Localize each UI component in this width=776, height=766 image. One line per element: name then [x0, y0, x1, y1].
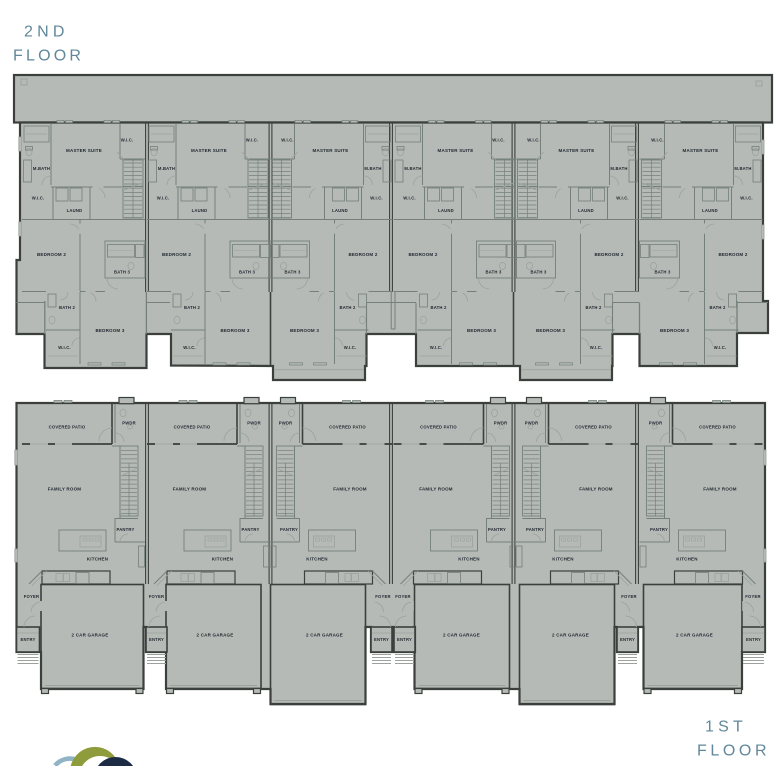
svg-text:FOYER: FOYER: [745, 594, 760, 599]
svg-text:LAUND: LAUND: [578, 208, 594, 213]
svg-text:W.I.C.: W.I.C.: [740, 196, 753, 201]
svg-text:ENTRY: ENTRY: [746, 637, 761, 642]
svg-text:COVERED PATIO: COVERED PATIO: [49, 425, 86, 430]
svg-text:FAMILY ROOM: FAMILY ROOM: [703, 487, 737, 492]
svg-text:W.I.C.: W.I.C.: [183, 345, 196, 350]
svg-text:W.I.C.: W.I.C.: [281, 138, 294, 143]
svg-text:PANTRY: PANTRY: [280, 527, 298, 532]
svg-text:MASTER SUITE: MASTER SUITE: [559, 148, 595, 153]
svg-text:KITCHEN: KITCHEN: [458, 557, 479, 562]
svg-text:BEDROOM 3: BEDROOM 3: [536, 328, 565, 333]
svg-text:ENTRY: ENTRY: [20, 637, 35, 642]
svg-text:BATH 3: BATH 3: [114, 270, 130, 275]
svg-text:FOYER: FOYER: [375, 594, 390, 599]
svg-text:ENTRY: ENTRY: [397, 637, 412, 642]
svg-text:BEDROOM 2: BEDROOM 2: [162, 252, 191, 257]
svg-text:FAMILY ROOM: FAMILY ROOM: [579, 487, 613, 492]
svg-text:FAMILY ROOM: FAMILY ROOM: [48, 487, 82, 492]
svg-text:M.BATH: M.BATH: [33, 166, 50, 171]
svg-text:BATH 3: BATH 3: [485, 270, 501, 275]
svg-text:BATH 2: BATH 2: [709, 305, 725, 310]
svg-text:FLOOR: FLOOR: [697, 743, 770, 760]
svg-text:PWDR: PWDR: [247, 421, 261, 426]
svg-text:FOYER: FOYER: [395, 594, 410, 599]
svg-text:2 CAR GARAGE: 2 CAR GARAGE: [443, 633, 480, 638]
svg-text:BATH 2: BATH 2: [184, 305, 200, 310]
svg-text:KITCHEN: KITCHEN: [552, 557, 573, 562]
svg-text:PWDR: PWDR: [122, 421, 136, 426]
svg-text:ENTRY: ENTRY: [149, 637, 164, 642]
svg-text:W.I.C.: W.I.C.: [590, 345, 603, 350]
svg-text:BEDROOM 2: BEDROOM 2: [408, 252, 437, 257]
svg-text:LAUND: LAUND: [702, 208, 718, 213]
svg-text:BEDROOM 3: BEDROOM 3: [220, 328, 249, 333]
svg-text:2 CAR GARAGE: 2 CAR GARAGE: [306, 633, 343, 638]
svg-text:W.I.C.: W.I.C.: [370, 196, 383, 201]
svg-text:M.BATH: M.BATH: [158, 166, 175, 171]
svg-text:PWDR: PWDR: [494, 421, 508, 426]
svg-text:LAUND: LAUND: [192, 208, 208, 213]
svg-text:1ST: 1ST: [705, 719, 747, 736]
svg-text:COVERED PATIO: COVERED PATIO: [699, 425, 736, 430]
svg-text:BATH 2: BATH 2: [339, 305, 355, 310]
svg-text:FAMILY ROOM: FAMILY ROOM: [173, 487, 207, 492]
svg-text:BEDROOM 3: BEDROOM 3: [467, 328, 496, 333]
svg-text:W.I.C.: W.I.C.: [121, 138, 134, 143]
svg-text:BATH 3: BATH 3: [284, 270, 300, 275]
svg-text:W.I.C.: W.I.C.: [616, 196, 629, 201]
svg-text:2 CAR GARAGE: 2 CAR GARAGE: [197, 633, 234, 638]
svg-text:KITCHEN: KITCHEN: [676, 557, 697, 562]
svg-text:M.BATH: M.BATH: [610, 166, 627, 171]
svg-text:MASTER SUITE: MASTER SUITE: [191, 148, 227, 153]
svg-text:PWDR: PWDR: [525, 421, 539, 426]
svg-text:W.I.C.: W.I.C.: [492, 138, 505, 143]
svg-text:FLOOR: FLOOR: [13, 48, 84, 65]
svg-text:PANTRY: PANTRY: [650, 527, 668, 532]
svg-text:2 CAR GARAGE: 2 CAR GARAGE: [72, 633, 109, 638]
svg-text:W.I.C.: W.I.C.: [157, 196, 170, 201]
svg-text:FAMILY ROOM: FAMILY ROOM: [333, 487, 367, 492]
svg-text:ENTRY: ENTRY: [620, 637, 635, 642]
svg-text:KITCHEN: KITCHEN: [212, 557, 233, 562]
svg-text:BATH 2: BATH 2: [59, 305, 75, 310]
svg-text:MASTER SUITE: MASTER SUITE: [313, 148, 349, 153]
svg-text:KITCHEN: KITCHEN: [306, 557, 327, 562]
svg-text:FOYER: FOYER: [621, 594, 636, 599]
svg-text:PWDR: PWDR: [279, 421, 293, 426]
svg-text:LAUND: LAUND: [438, 208, 454, 213]
svg-text:PANTRY: PANTRY: [488, 527, 506, 532]
svg-text:W.I.C.: W.I.C.: [714, 345, 727, 350]
svg-text:BATH 2: BATH 2: [585, 305, 601, 310]
svg-text:COVERED PATIO: COVERED PATIO: [329, 425, 366, 430]
svg-text:M.BATH: M.BATH: [364, 166, 381, 171]
svg-text:2 CAR GARAGE: 2 CAR GARAGE: [552, 633, 589, 638]
svg-text:BATH 3: BATH 3: [530, 270, 546, 275]
svg-text:W.I.C.: W.I.C.: [344, 345, 357, 350]
svg-text:W.I.C.: W.I.C.: [430, 345, 443, 350]
svg-text:COVERED PATIO: COVERED PATIO: [575, 425, 612, 430]
svg-text:W.I.C.: W.I.C.: [403, 196, 416, 201]
svg-text:MASTER SUITE: MASTER SUITE: [683, 148, 719, 153]
svg-text:BEDROOM 3: BEDROOM 3: [290, 328, 319, 333]
svg-text:BATH 3: BATH 3: [654, 270, 670, 275]
svg-text:W.I.C.: W.I.C.: [527, 138, 540, 143]
svg-text:BEDROOM 3: BEDROOM 3: [660, 328, 689, 333]
svg-text:BEDROOM 2: BEDROOM 2: [348, 252, 377, 257]
svg-text:W.I.C.: W.I.C.: [246, 138, 259, 143]
svg-text:W.I.C.: W.I.C.: [32, 196, 45, 201]
svg-text:M.BATH: M.BATH: [734, 166, 751, 171]
svg-text:PWDR: PWDR: [649, 421, 663, 426]
svg-text:COVERED PATIO: COVERED PATIO: [420, 425, 457, 430]
svg-text:LAUND: LAUND: [332, 208, 348, 213]
svg-text:MASTER SUITE: MASTER SUITE: [66, 148, 102, 153]
svg-text:MASTER SUITE: MASTER SUITE: [438, 148, 474, 153]
svg-text:FAMILY ROOM: FAMILY ROOM: [419, 487, 453, 492]
svg-text:LAUND: LAUND: [67, 208, 83, 213]
svg-text:PANTRY: PANTRY: [526, 527, 544, 532]
svg-text:COVERED PATIO: COVERED PATIO: [174, 425, 211, 430]
svg-text:KITCHEN: KITCHEN: [87, 557, 108, 562]
svg-text:W.I.C.: W.I.C.: [58, 345, 71, 350]
svg-text:BEDROOM 2: BEDROOM 2: [594, 252, 623, 257]
svg-text:BEDROOM 2: BEDROOM 2: [37, 252, 66, 257]
svg-text:PANTRY: PANTRY: [117, 527, 135, 532]
svg-text:FOYER: FOYER: [149, 594, 164, 599]
svg-text:ENTRY: ENTRY: [374, 637, 389, 642]
svg-text:PANTRY: PANTRY: [242, 527, 260, 532]
svg-text:2 CAR GARAGE: 2 CAR GARAGE: [676, 633, 713, 638]
svg-text:M.BATH: M.BATH: [404, 166, 421, 171]
svg-text:2ND: 2ND: [24, 24, 69, 41]
svg-text:FOYER: FOYER: [24, 594, 39, 599]
svg-text:BATH 2: BATH 2: [430, 305, 446, 310]
svg-text:BEDROOM 2: BEDROOM 2: [718, 252, 747, 257]
svg-text:W.I.C.: W.I.C.: [651, 138, 664, 143]
svg-text:BATH 3: BATH 3: [239, 270, 255, 275]
svg-text:BEDROOM 3: BEDROOM 3: [95, 328, 124, 333]
